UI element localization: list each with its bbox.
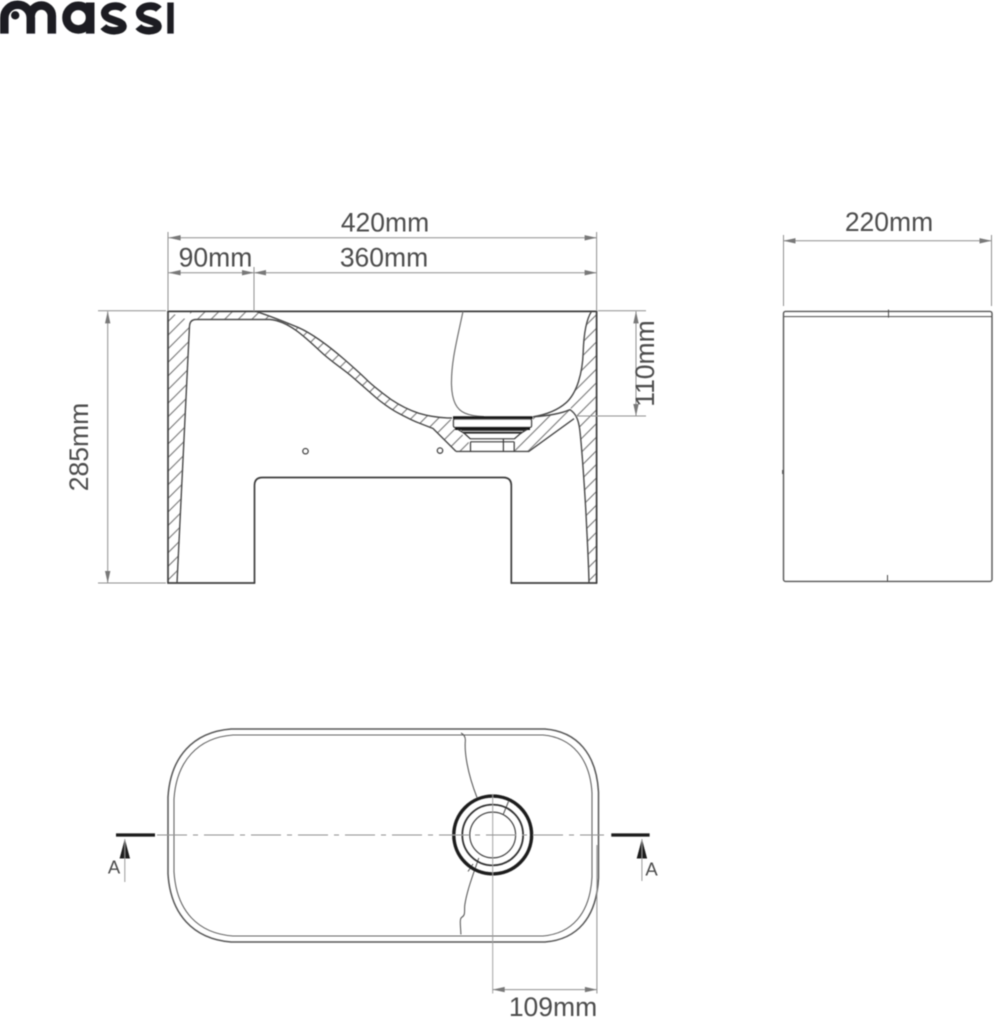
svg-text:285mm: 285mm	[64, 403, 94, 491]
svg-text:110mm: 110mm	[630, 320, 660, 406]
svg-text:360mm: 360mm	[340, 243, 428, 273]
svg-text:90mm: 90mm	[179, 243, 253, 273]
svg-text:A: A	[108, 857, 121, 878]
svg-text:A: A	[645, 859, 658, 880]
svg-text:420mm: 420mm	[341, 208, 429, 238]
svg-text:220mm: 220mm	[845, 207, 933, 237]
svg-text:109mm: 109mm	[509, 992, 597, 1020]
